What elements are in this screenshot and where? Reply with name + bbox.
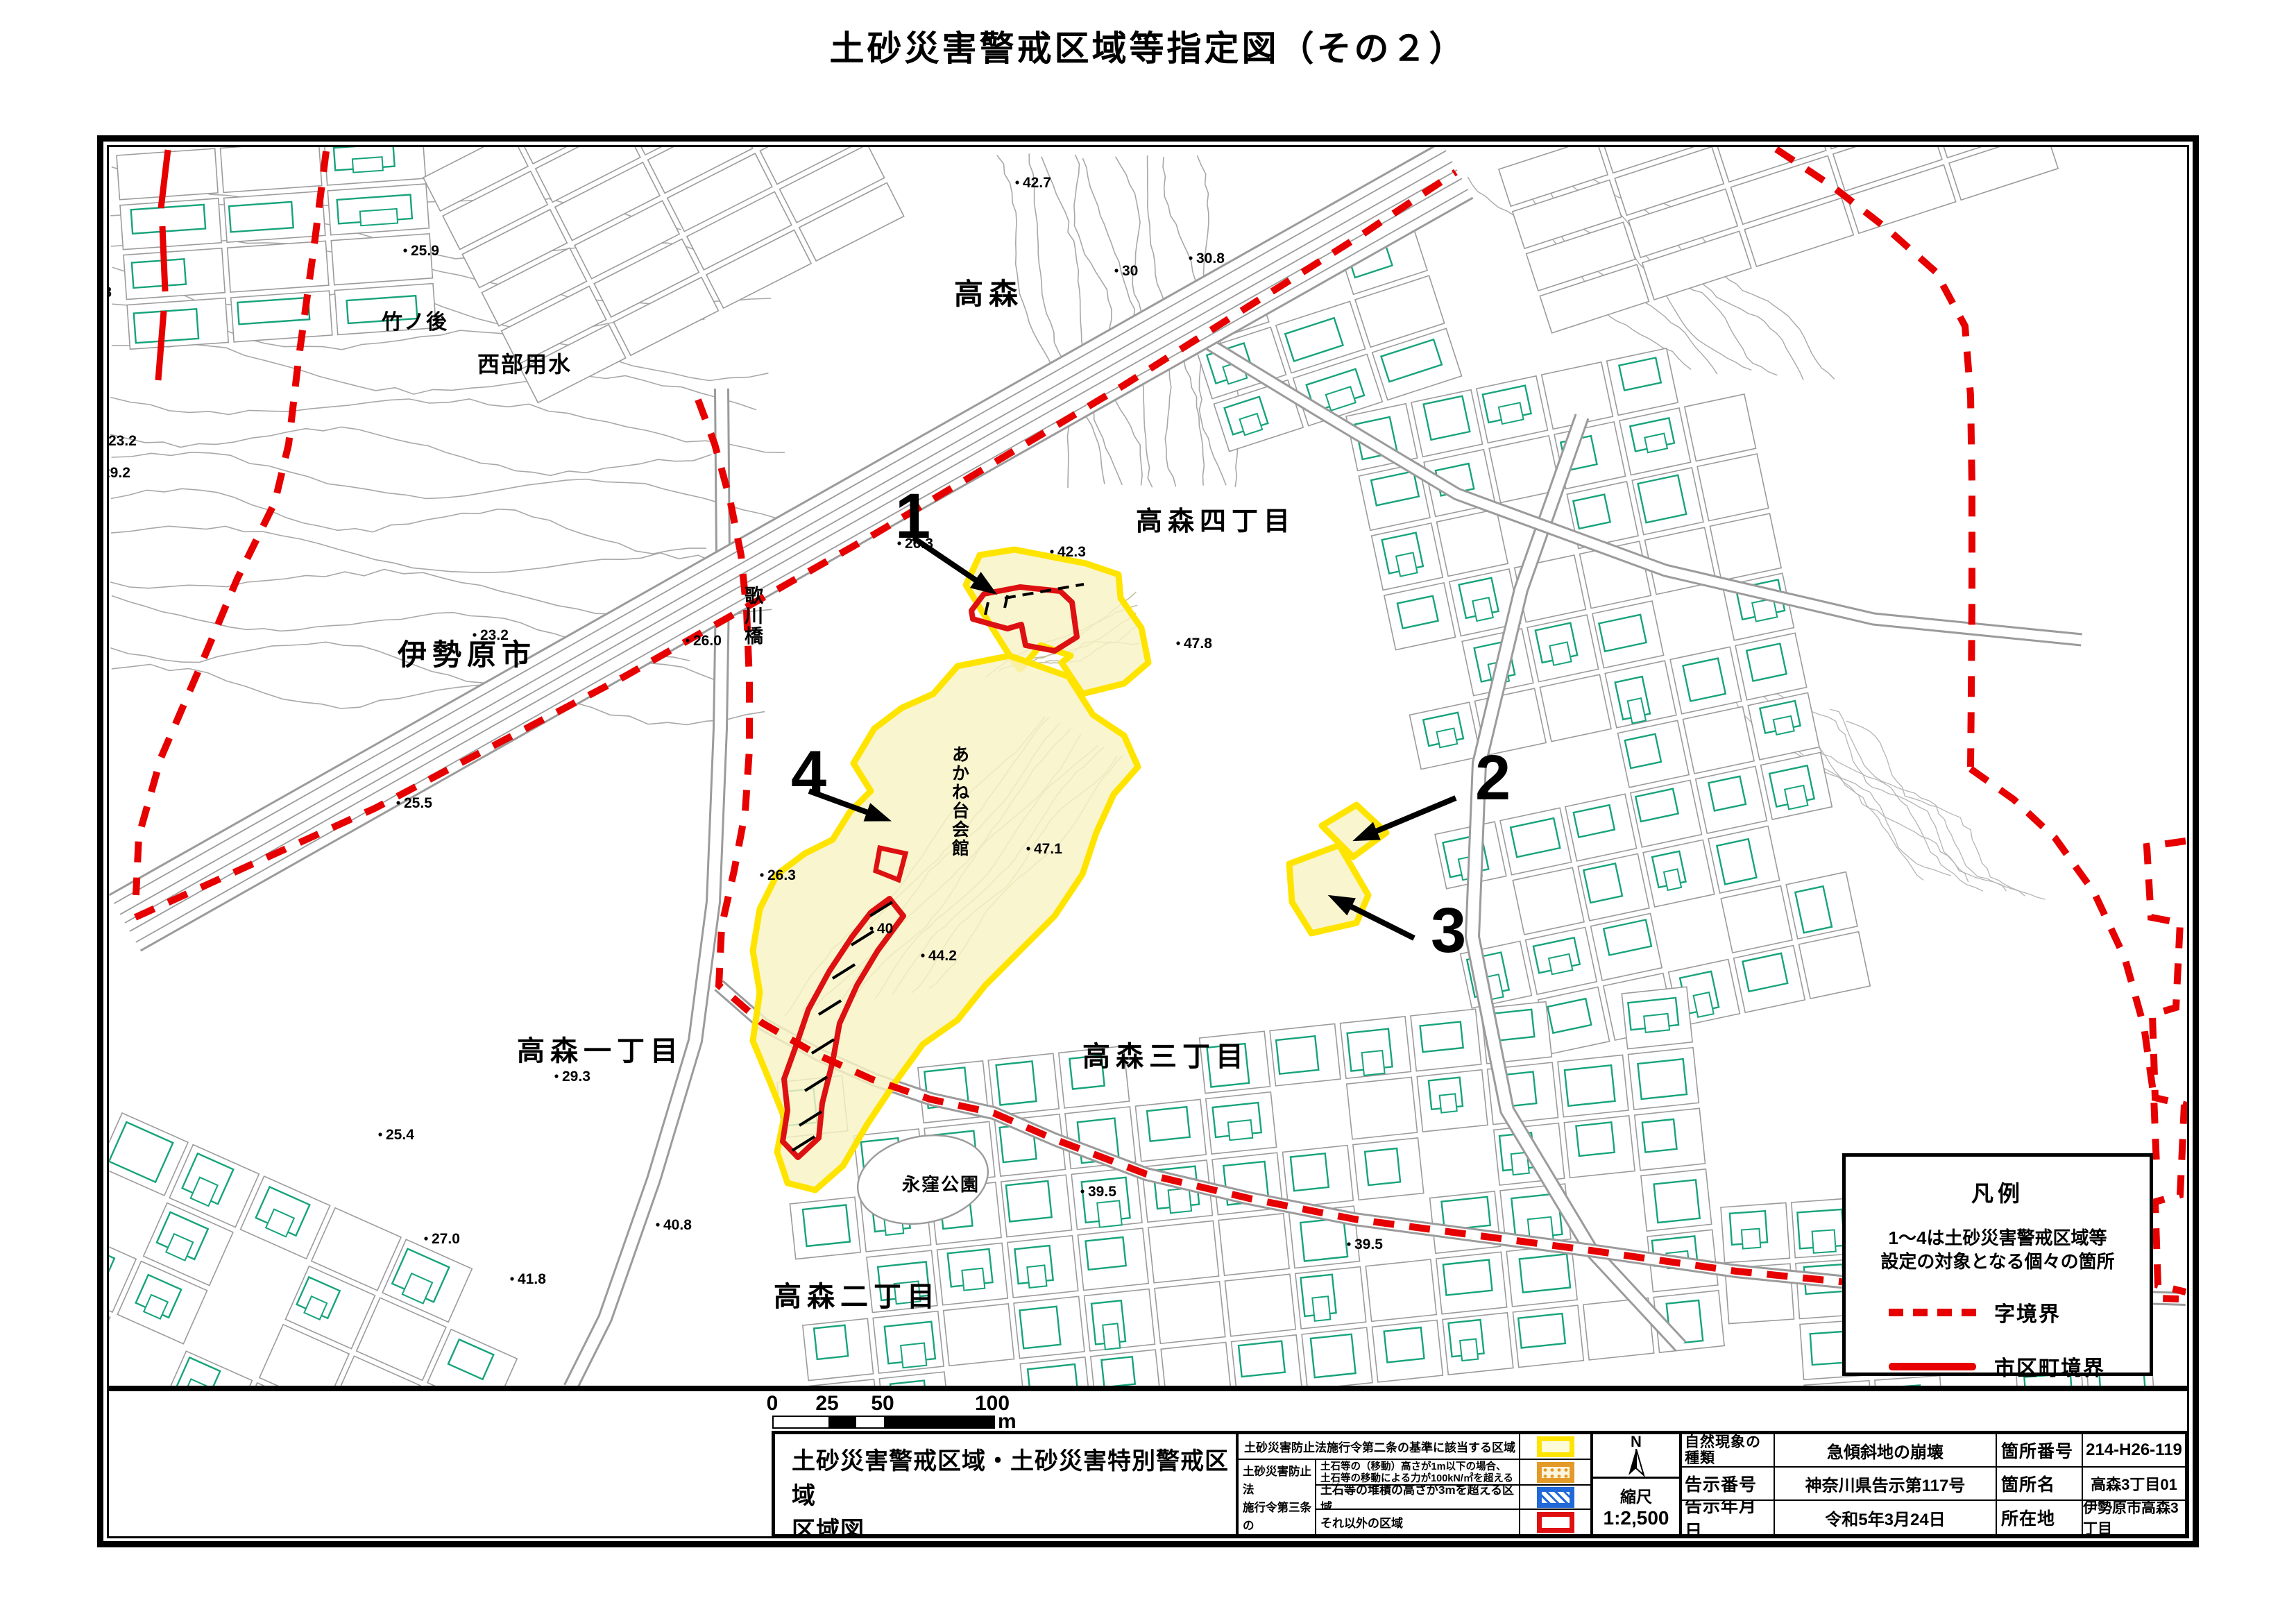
place-label: 竹ノ後 — [382, 311, 448, 334]
hazard-map-page: { "title": "土砂災害警戒区域等指定図（その２）", "map": {… — [0, 0, 2296, 1623]
law3-row2-swatch-cell — [1519, 1486, 1590, 1510]
field-label-cell: 箇所番号 — [1997, 1434, 2082, 1468]
solid-line-sample — [1889, 1363, 1976, 1370]
legend-item-city-boundary: 市区町境界 — [1846, 1351, 2150, 1382]
red-outline-swatch — [1537, 1512, 1574, 1533]
svg-text:43.7: 43.7 — [484, 78, 513, 94]
field-value-cell: 神奈川県告示第117号 — [1774, 1468, 1997, 1501]
svg-text:30.8: 30.8 — [1196, 250, 1225, 266]
residential-blocks — [1346, 348, 1870, 1054]
field-label-cell: 自然現象の種類 — [1679, 1434, 1774, 1468]
orange-dotted-swatch — [1537, 1462, 1574, 1483]
scale-bar-segments — [772, 1416, 995, 1429]
svg-text:29.5: 29.5 — [790, 58, 818, 74]
place-label: 伊勢原市 — [397, 638, 536, 671]
field-value-cell: 214-H26-119 — [2082, 1434, 2185, 1468]
yellow-zone-swatch — [1537, 1436, 1574, 1457]
blue-hatched-swatch — [1537, 1487, 1574, 1508]
svg-text:25.5: 25.5 — [404, 795, 432, 811]
svg-text:47.1: 47.1 — [1034, 841, 1062, 857]
zone-3-yellow — [1289, 845, 1368, 933]
scale-label: 縮尺 — [1620, 1484, 1652, 1507]
field-label-cell: 箇所名 — [1997, 1468, 2082, 1501]
svg-text:40.8: 40.8 — [663, 1217, 692, 1233]
svg-text:29.2: 29.2 — [102, 465, 130, 481]
field-label-cell: 告示番号 — [1679, 1468, 1774, 1501]
law2-zone-label: 土砂災害防止法施行令第二条の基準に該当する区域 — [1244, 1434, 1519, 1459]
compass-cell: N — [1590, 1434, 1679, 1479]
info-table: 土砂災害警戒区域・土砂災害特別警戒区域 区域図 土砂災害防止法施行令第二条の基準… — [772, 1431, 2188, 1538]
legend-note-line1: 1～4は土砂災害警戒区域等 — [1880, 1226, 2114, 1250]
sheet-title-line1: 土砂災害警戒区域・土砂災害特別警戒区域 — [792, 1444, 1236, 1513]
law3-merged-label-cell: 土砂災害防止法 施行令第三条の 基準に該当する 区域 — [1239, 1460, 1316, 1534]
field-value-cell: 高森3丁目01 — [2082, 1468, 2185, 1501]
field-value-cell: 伊勢原市高森3丁目 — [2082, 1501, 2185, 1534]
scale-bar: 0 25 50 100 m — [763, 1392, 1041, 1431]
svg-text:45.8: 45.8 — [307, 62, 335, 78]
svg-text:24.0: 24.0 — [62, 425, 91, 441]
svg-text:42.3: 42.3 — [1057, 544, 1086, 560]
dashed-line-sample — [1889, 1309, 1976, 1316]
sheet-title-cell: 土砂災害警戒区域・土砂災害特別警戒区域 区域図 — [775, 1434, 1239, 1534]
svg-text:23.2: 23.2 — [480, 627, 509, 643]
svg-text:47.8: 47.8 — [1184, 636, 1212, 652]
svg-text:41.8: 41.8 — [518, 1271, 546, 1287]
law3-row1-label-cell: 土石等の（移動）高さが1m以下の場合、 土石等の移動による力が100kN/㎡を超… — [1316, 1460, 1519, 1486]
law3-row1-swatch-cell — [1519, 1460, 1590, 1486]
place-label: 永窪公園 — [902, 1174, 980, 1195]
law3-row3-swatch-cell — [1519, 1510, 1590, 1534]
field-label-cell: 所在地 — [1997, 1501, 2082, 1534]
residential-blocks — [0, 1113, 517, 1587]
place-label: 高森四丁目 — [1136, 507, 1295, 536]
zone-number-2: 2 — [1475, 742, 1511, 813]
scale-tick-25: 25 — [815, 1392, 838, 1416]
legend-note: 1～4は土砂災害警戒区域等 設定の対象となる個々の箇所 — [1880, 1226, 2114, 1273]
svg-text:25.9: 25.9 — [411, 243, 439, 259]
place-label: 西部用水 — [477, 352, 572, 377]
scale-cell: 縮尺 1:2,500 — [1590, 1479, 1679, 1534]
svg-text:39.5: 39.5 — [1354, 1237, 1383, 1252]
svg-text:26.0: 26.0 — [693, 633, 722, 649]
svg-text:23.2: 23.2 — [108, 433, 137, 449]
legend-item-label: 市区町境界 — [1994, 1351, 2105, 1382]
legend-item-label: 字境界 — [1994, 1297, 2061, 1327]
field-parcels — [1499, 5, 2058, 333]
zone-number-3: 3 — [1431, 895, 1466, 966]
scale-tick-50: 50 — [871, 1392, 894, 1416]
svg-text:30: 30 — [1122, 263, 1138, 279]
law2-zone-label-cell: 土砂災害防止法施行令第二条の基準に該当する区域 — [1239, 1434, 1519, 1460]
svg-text:29.3: 29.3 — [562, 1069, 590, 1085]
svg-text:26.3: 26.3 — [905, 536, 933, 552]
field-parcels — [423, 0, 904, 402]
svg-text:33.8: 33.8 — [568, 114, 596, 130]
zone-number-4: 4 — [791, 738, 826, 809]
place-label: 高森一丁目 — [517, 1036, 683, 1067]
svg-text:42.7: 42.7 — [1023, 175, 1051, 191]
place-label: あかね台会館 — [952, 745, 971, 858]
svg-text:44.2: 44.2 — [928, 948, 957, 964]
compass-north-label: N — [1631, 1435, 1642, 1449]
map-legend-box: 凡例 1～4は土砂災害警戒区域等 設定の対象となる個々の箇所 字境界 市区町境界 — [1842, 1153, 2153, 1376]
field-value-cell: 令和5年3月24日 — [1774, 1501, 1997, 1534]
scale-tick-0: 0 — [767, 1392, 779, 1416]
svg-text:32.2: 32.2 — [257, 78, 285, 94]
svg-text:26.3: 26.3 — [767, 867, 796, 883]
law3-row2-label-cell: 土石等の堆積の高さが3mを超える区域 — [1316, 1486, 1519, 1510]
place-label: 高森 — [954, 278, 1023, 310]
place-label: 高森三丁目 — [1082, 1042, 1249, 1072]
map-area-bottom-rule — [109, 1386, 2187, 1391]
scale-value: 1:2,500 — [1604, 1507, 1669, 1529]
sheet-title-line2: 区域図 — [792, 1513, 1236, 1534]
legend-title: 凡例 — [1971, 1176, 2024, 1208]
place-label: 歌川橋 — [745, 586, 765, 647]
field-value-cell: 急傾斜地の崩壊 — [1774, 1434, 1997, 1468]
svg-text:25.4: 25.4 — [386, 1127, 414, 1143]
svg-text:27.0: 27.0 — [432, 1231, 460, 1247]
place-label: 高森二丁目 — [774, 1282, 940, 1312]
legend-note-line2: 設定の対象となる個々の箇所 — [1880, 1250, 2114, 1273]
svg-text:40: 40 — [877, 921, 893, 937]
svg-text:39.5: 39.5 — [1088, 1184, 1116, 1200]
law3-row3-label-cell: それ以外の区域 — [1316, 1510, 1519, 1534]
legend-item-aza-boundary: 字境界 — [1846, 1297, 2150, 1327]
scale-unit: m — [998, 1410, 1017, 1434]
north-arrow-icon — [1624, 1449, 1648, 1477]
law2-swatch-cell — [1519, 1434, 1590, 1460]
field-label-cell: 告示年月日 — [1679, 1501, 1774, 1534]
